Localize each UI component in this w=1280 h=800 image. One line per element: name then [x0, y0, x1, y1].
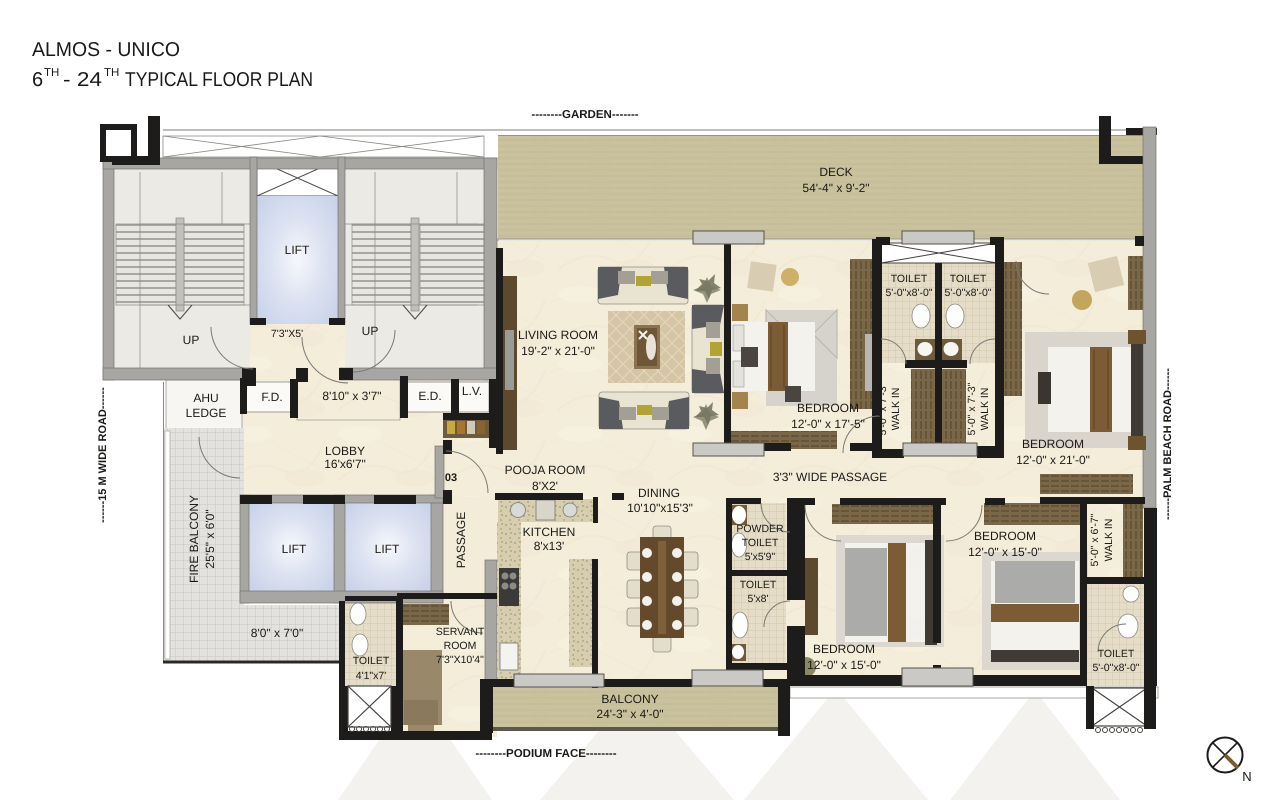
svg-text:10'10"x15'3": 10'10"x15'3": [627, 501, 693, 515]
svg-text:POWDER: POWDER: [736, 523, 784, 535]
svg-text:7'3"X10'4": 7'3"X10'4": [436, 654, 484, 666]
svg-text:5'-0" x 6'-7": 5'-0" x 6'-7": [1089, 513, 1101, 566]
svg-text:ALMOS - UNICO: ALMOS - UNICO: [32, 39, 180, 61]
svg-text:DINING: DINING: [638, 486, 680, 500]
svg-text:4'1"x7': 4'1"x7': [356, 670, 387, 682]
svg-text:AHU: AHU: [193, 391, 218, 405]
svg-text:TOILET: TOILET: [891, 273, 928, 285]
svg-text:12'-0" x 15'-0": 12'-0" x 15'-0": [968, 545, 1042, 559]
svg-text:5'-0"x8'-0": 5'-0"x8'-0": [1092, 662, 1139, 674]
svg-text:BEDROOM: BEDROOM: [1022, 437, 1084, 451]
svg-text:SERVANT: SERVANT: [436, 626, 485, 638]
svg-text:WALK IN: WALK IN: [979, 388, 991, 431]
svg-text:BEDROOM: BEDROOM: [797, 401, 859, 415]
svg-text:- 24: - 24: [63, 69, 102, 91]
svg-text:DECK: DECK: [819, 165, 852, 179]
svg-text:5'-0" x 7'-3": 5'-0" x 7'-3": [877, 382, 889, 435]
svg-text:8'X2': 8'X2': [532, 479, 558, 493]
svg-text:E.D.: E.D.: [418, 389, 441, 403]
svg-text:5'-0"x8'-0": 5'-0"x8'-0": [885, 287, 932, 299]
svg-text:TYPICAL FLOOR PLAN: TYPICAL FLOOR PLAN: [125, 69, 313, 91]
svg-text:BALCONY: BALCONY: [601, 692, 658, 706]
svg-text:8'0" x 7'0": 8'0" x 7'0": [251, 626, 303, 640]
svg-text:LEDGE: LEDGE: [186, 406, 227, 420]
svg-text:LIFT: LIFT: [285, 243, 310, 257]
svg-text:--------PODIUM FACE--------: --------PODIUM FACE--------: [475, 748, 616, 760]
svg-text:FIRE BALCONY: FIRE BALCONY: [187, 495, 201, 583]
svg-text:L.V.: L.V.: [462, 384, 482, 398]
svg-text:6: 6: [32, 69, 43, 91]
svg-text:N: N: [1242, 769, 1251, 784]
svg-text:25'5" x 6'0": 25'5" x 6'0": [203, 509, 217, 568]
svg-text:ROOM: ROOM: [444, 640, 477, 652]
svg-text:5'-0" x 7'-3": 5'-0" x 7'-3": [966, 382, 978, 435]
svg-text:WALK IN: WALK IN: [1103, 519, 1115, 562]
svg-text:7'3"X5': 7'3"X5': [271, 328, 303, 340]
svg-text:TOILET: TOILET: [353, 655, 390, 667]
svg-text:------PALM BEACH ROAD------: ------PALM BEACH ROAD------: [1162, 368, 1174, 520]
svg-text:TOILET: TOILET: [1098, 648, 1135, 660]
svg-text:LIFT: LIFT: [282, 542, 307, 556]
svg-text:UP: UP: [362, 324, 379, 338]
svg-text:3'3" WIDE PASSAGE: 3'3" WIDE PASSAGE: [773, 470, 887, 484]
svg-text:TOILET: TOILET: [950, 273, 987, 285]
svg-text:16'x6'7": 16'x6'7": [324, 457, 366, 471]
svg-text:12'-0" x 15'-0": 12'-0" x 15'-0": [807, 658, 881, 672]
svg-text:POOJA ROOM: POOJA ROOM: [505, 463, 586, 477]
svg-text:------15 M WIDE ROAD------: ------15 M WIDE ROAD------: [97, 387, 109, 523]
svg-text:TH: TH: [104, 67, 119, 79]
svg-text:F.D.: F.D.: [261, 390, 282, 404]
svg-text:--------GARDEN-------: --------GARDEN-------: [531, 109, 638, 121]
svg-text:8'x13': 8'x13': [534, 539, 565, 553]
svg-text:8'10" x 3'7": 8'10" x 3'7": [322, 389, 381, 403]
svg-text:TOILET: TOILET: [742, 537, 779, 549]
svg-text:WALK IN: WALK IN: [890, 388, 902, 431]
svg-text:54'-4" x 9'-2": 54'-4" x 9'-2": [802, 181, 869, 195]
svg-text:TOILET: TOILET: [740, 579, 777, 591]
svg-text:24'-3" x 4'-0": 24'-3" x 4'-0": [596, 707, 663, 721]
svg-text:12'-0" x 21'-0": 12'-0" x 21'-0": [1016, 453, 1090, 467]
svg-text:BEDROOM: BEDROOM: [974, 529, 1036, 543]
svg-text:5'-0"x8'-0": 5'-0"x8'-0": [944, 287, 991, 299]
svg-text:19'-2" x 21'-0": 19'-2" x 21'-0": [521, 344, 595, 358]
svg-text:BEDROOM: BEDROOM: [813, 642, 875, 656]
svg-text:LIVING ROOM: LIVING ROOM: [518, 328, 598, 342]
svg-text:KITCHEN: KITCHEN: [523, 525, 576, 539]
svg-text:UP: UP: [183, 333, 200, 347]
svg-text:12'-0" x 17'-5": 12'-0" x 17'-5": [791, 417, 865, 431]
svg-text:LIFT: LIFT: [375, 542, 400, 556]
svg-text:TH: TH: [44, 67, 59, 79]
svg-text:5'x5'9": 5'x5'9": [745, 551, 776, 563]
svg-text:03: 03: [445, 472, 457, 484]
svg-text:PASSAGE: PASSAGE: [454, 512, 468, 568]
svg-text:LOBBY: LOBBY: [325, 444, 365, 458]
svg-text:5'x8': 5'x8': [748, 593, 769, 605]
